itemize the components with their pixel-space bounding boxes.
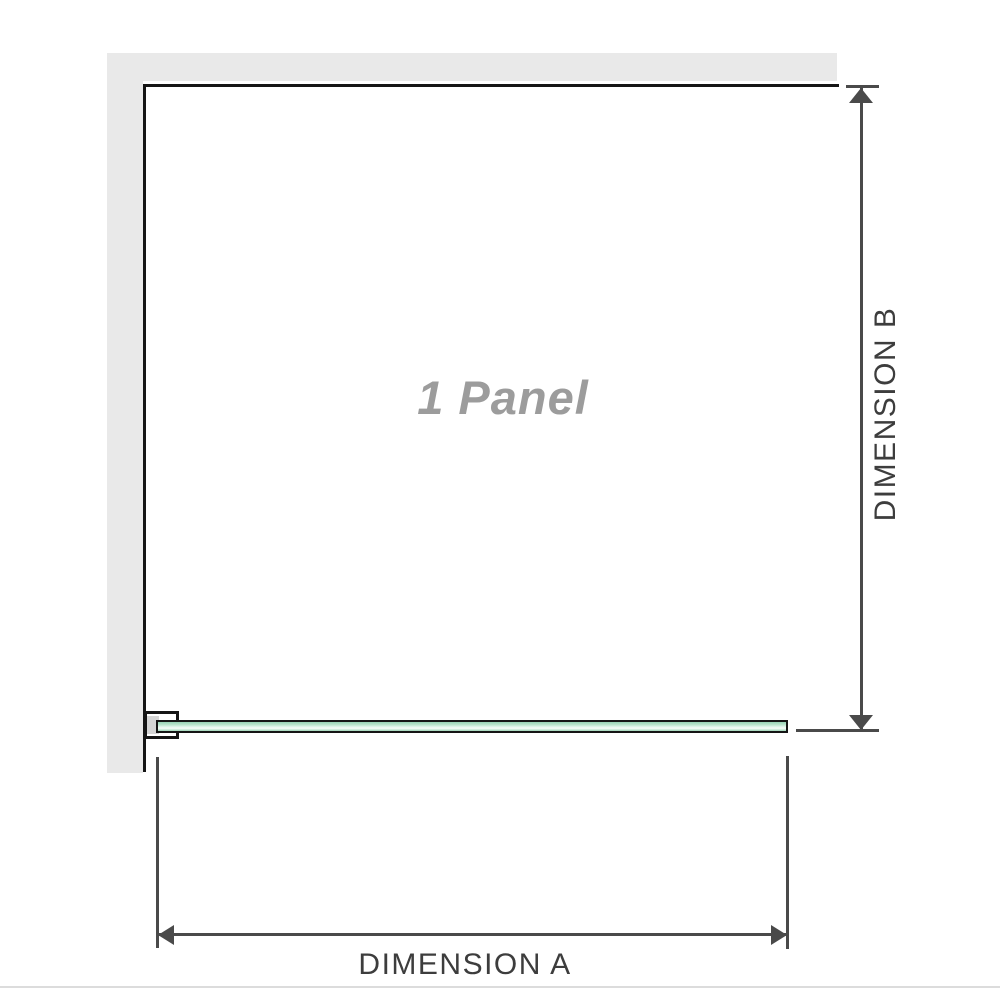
dimension-a-extension-left (156, 757, 159, 948)
arrow-up-icon (849, 88, 873, 103)
glass-panel (156, 720, 788, 733)
panel-count-label: 1 Panel (417, 370, 589, 425)
bottom-hairline (0, 986, 1000, 988)
arrow-down-icon (849, 715, 873, 730)
dimension-a-line (158, 933, 787, 936)
dimension-a-label: DIMENSION A (358, 948, 571, 982)
dimension-b-label: DIMENSION B (869, 307, 903, 522)
dimension-b-line (860, 88, 863, 730)
arrow-right-icon (771, 925, 787, 945)
wall-left (107, 53, 143, 773)
arrow-left-icon (158, 925, 174, 945)
wall-top (107, 53, 837, 81)
shower-panel-diagram: 1 Panel DIMENSION B DIMENSION A (0, 0, 1000, 1000)
panel-area-border-left (143, 84, 146, 772)
panel-area-border-top (143, 84, 839, 87)
dimension-a-extension-right (786, 756, 789, 949)
